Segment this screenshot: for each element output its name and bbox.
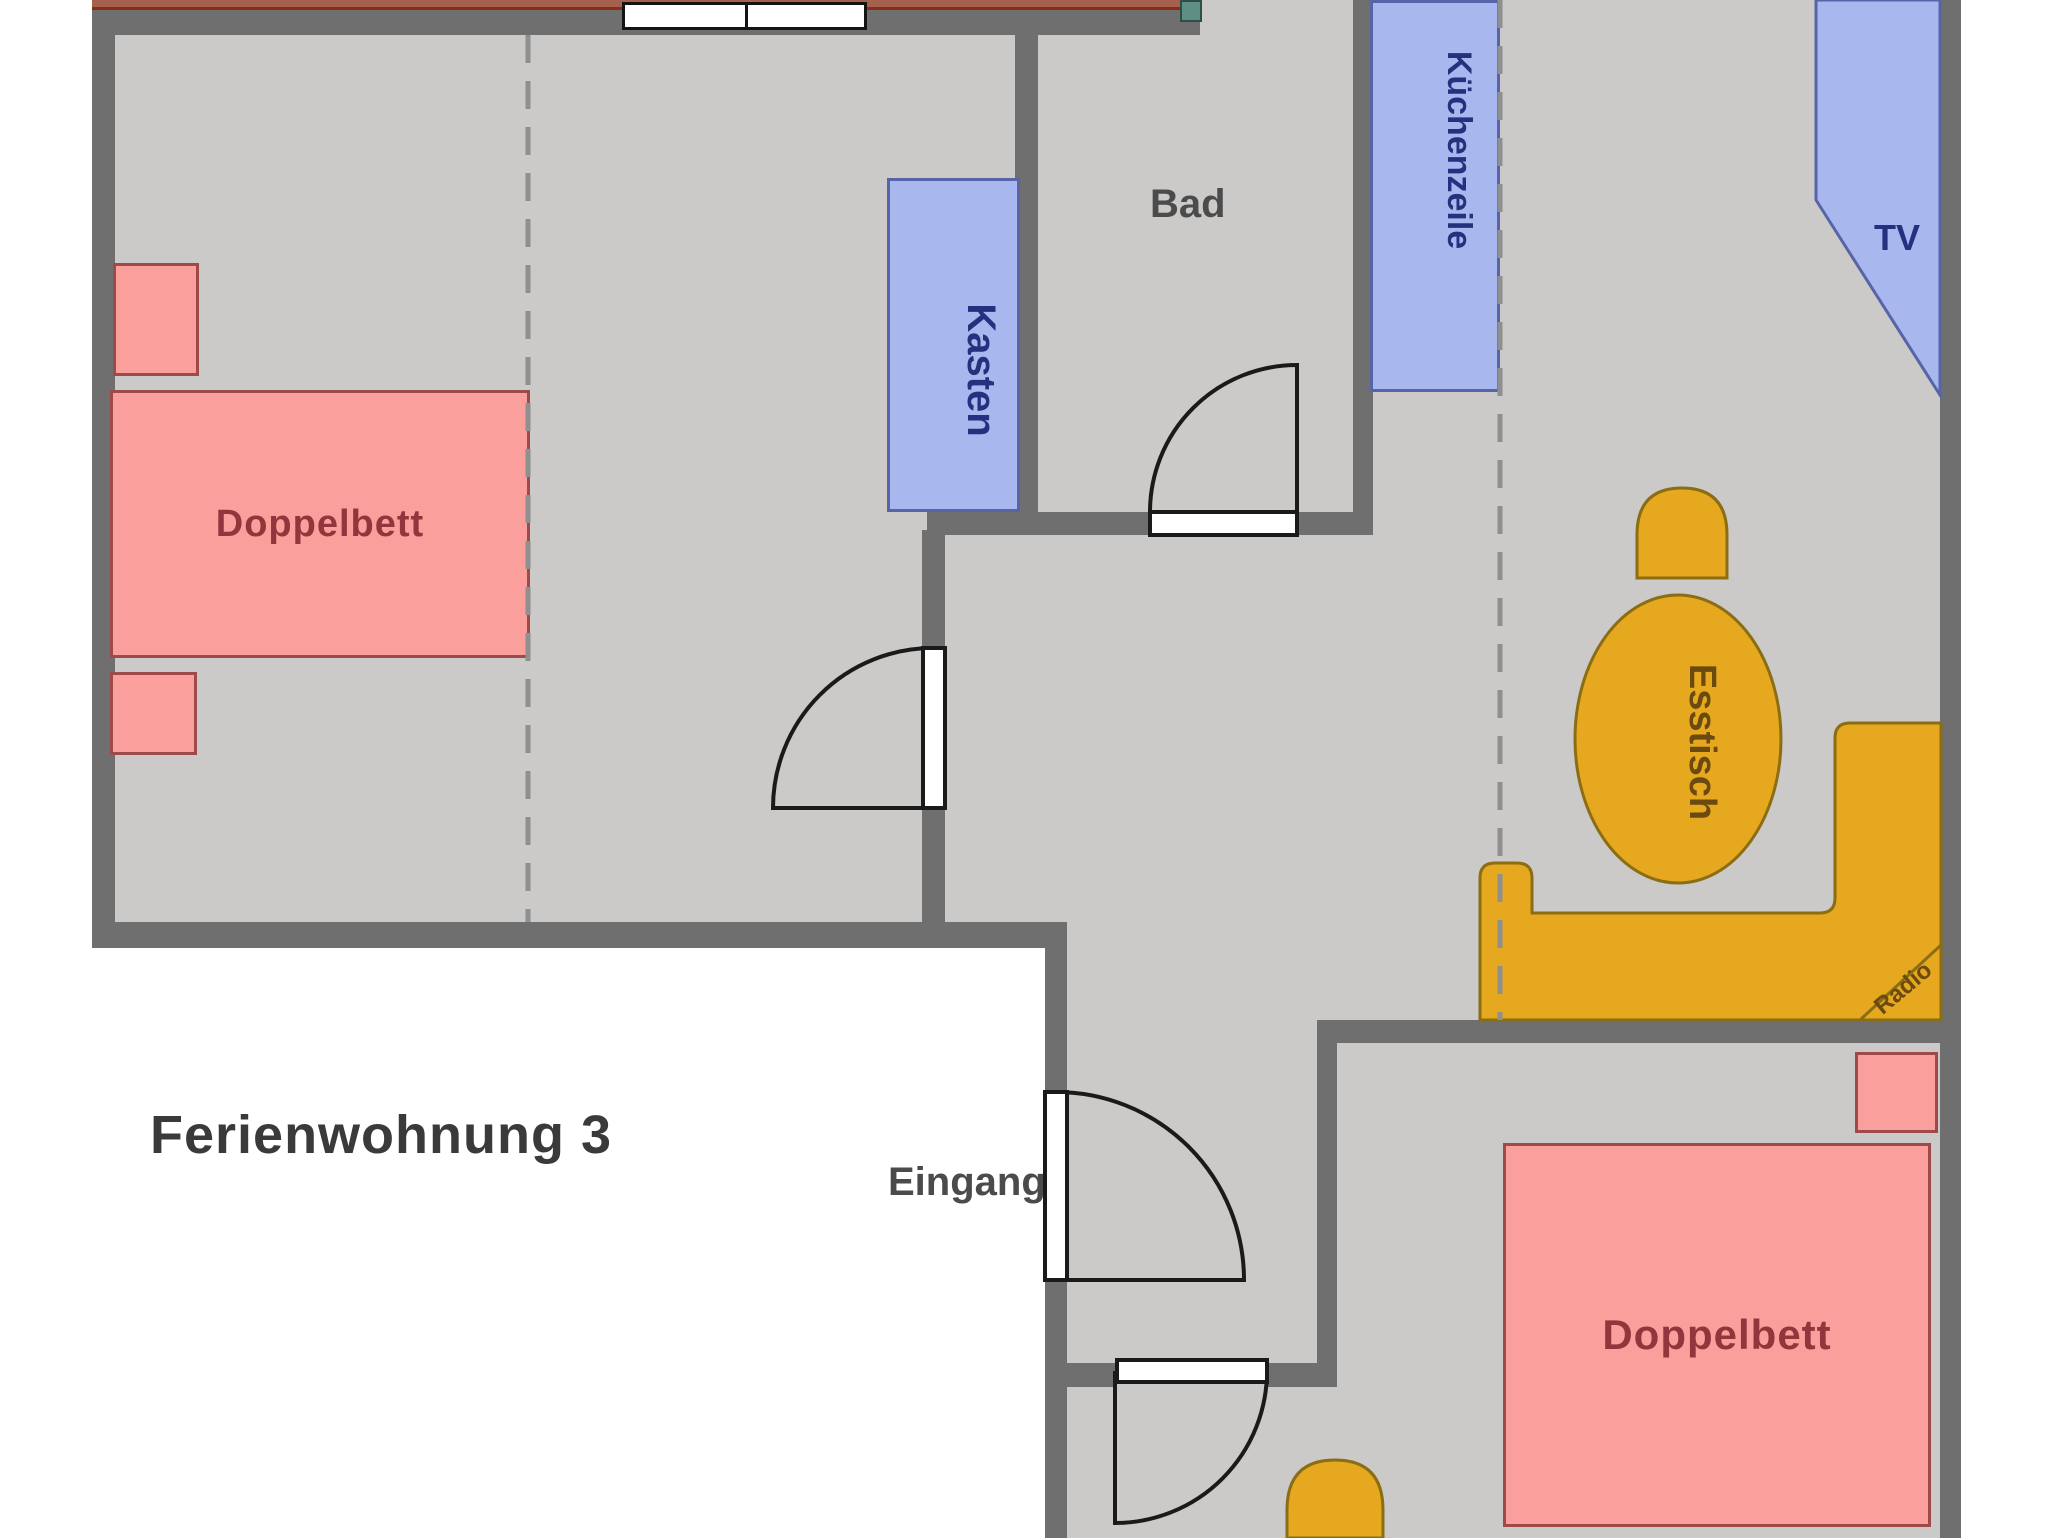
kitchenette-label: Küchenzeile (1440, 51, 1478, 249)
door-entrance (1045, 1092, 1244, 1280)
dining-table (1575, 595, 1781, 883)
door-bedroom1 (773, 648, 945, 808)
tv-cabinet (1816, 0, 1940, 395)
dining-table-label: Esstisch (1681, 664, 1723, 820)
door-bathroom (1150, 365, 1297, 535)
wardrobe-label: Kasten (959, 303, 1003, 436)
dining-chair-top (1637, 488, 1727, 578)
chair-bottom-room (1287, 1460, 1383, 1538)
floor-plan: Doppelbett Doppelbett Bad Eingang Ferien… (0, 0, 2048, 1538)
plan-overlay: Radio Esstisch TV Kasten Küchenzeile (0, 0, 2048, 1538)
tv-label: TV (1874, 217, 1920, 258)
door-lower-room (1115, 1360, 1267, 1523)
